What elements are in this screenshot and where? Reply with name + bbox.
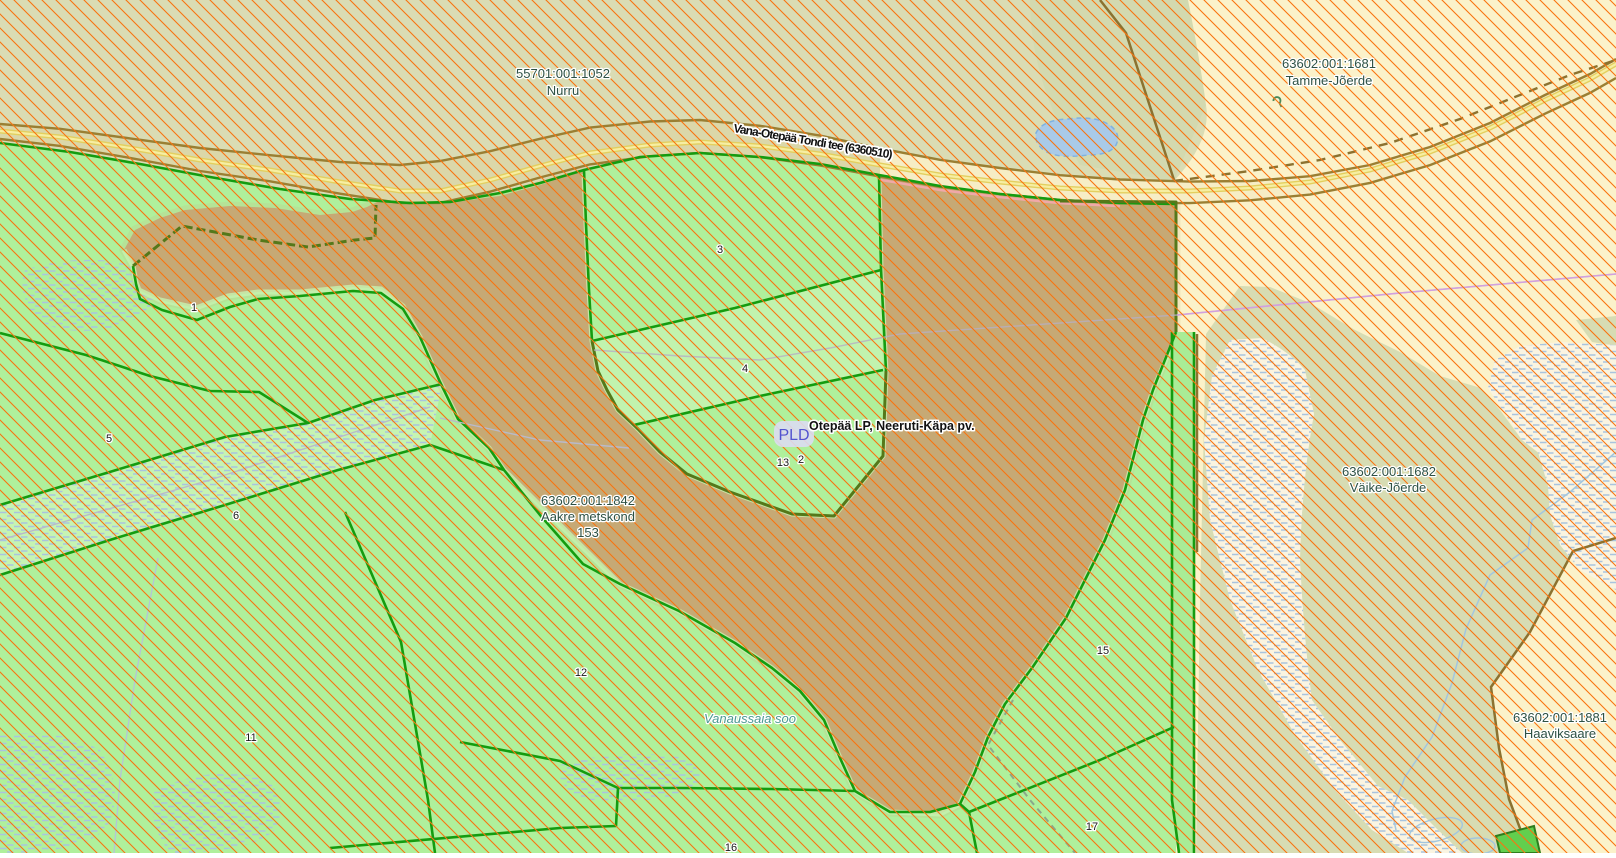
svg-text:11: 11 <box>245 732 256 744</box>
svg-text:Aakre metskond: Aakre metskond <box>541 509 635 524</box>
svg-text:PLD: PLD <box>778 427 809 444</box>
svg-text:63602:001:1682: 63602:001:1682 <box>1342 464 1436 479</box>
svg-text:17: 17 <box>1086 821 1098 833</box>
svg-text:Nurru: Nurru <box>547 83 580 98</box>
svg-text:4: 4 <box>742 363 748 375</box>
svg-text:Tamme-Jõerde: Tamme-Jõerde <box>1286 73 1373 88</box>
svg-text:Vanaussaia soo: Vanaussaia soo <box>704 711 796 726</box>
svg-text:13: 13 <box>777 457 789 469</box>
svg-text:63602:001:1842: 63602:001:1842 <box>541 493 635 508</box>
svg-text:63602:001:1881: 63602:001:1881 <box>1513 710 1607 725</box>
svg-text:16: 16 <box>725 842 737 853</box>
svg-text:63602:001:1681: 63602:001:1681 <box>1282 56 1376 71</box>
svg-text:2: 2 <box>798 454 804 466</box>
svg-text:15: 15 <box>1097 645 1109 657</box>
svg-text:Haaviksaare: Haaviksaare <box>1524 726 1596 741</box>
svg-text:Otepää LP, Neeruti-Käpa pv.: Otepää LP, Neeruti-Käpa pv. <box>809 419 975 433</box>
svg-text:12: 12 <box>575 667 587 679</box>
svg-text:3: 3 <box>717 244 723 256</box>
svg-text:5: 5 <box>106 433 112 445</box>
svg-text:Väike-Jõerde: Väike-Jõerde <box>1350 480 1427 495</box>
svg-text:153: 153 <box>577 525 599 540</box>
svg-text:1: 1 <box>191 302 197 314</box>
svg-text:6: 6 <box>233 510 239 522</box>
svg-text:55701:001:1052: 55701:001:1052 <box>516 66 610 81</box>
